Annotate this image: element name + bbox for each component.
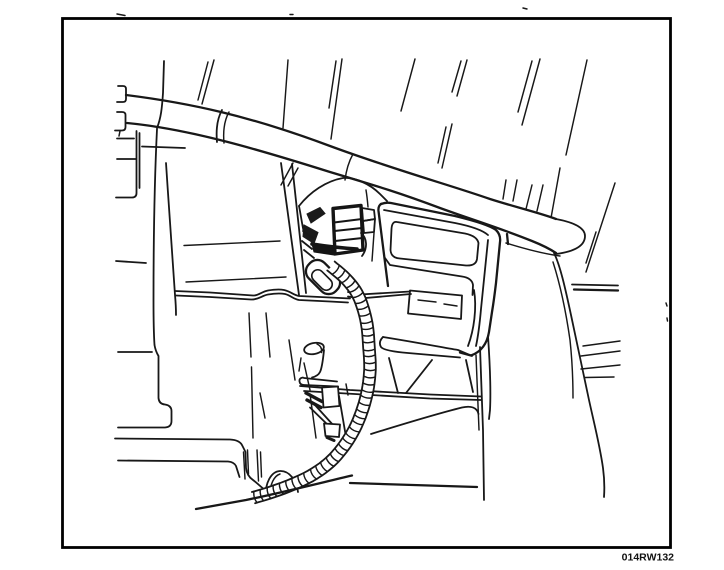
svg-text:014RW132: 014RW132 <box>622 552 675 564</box>
